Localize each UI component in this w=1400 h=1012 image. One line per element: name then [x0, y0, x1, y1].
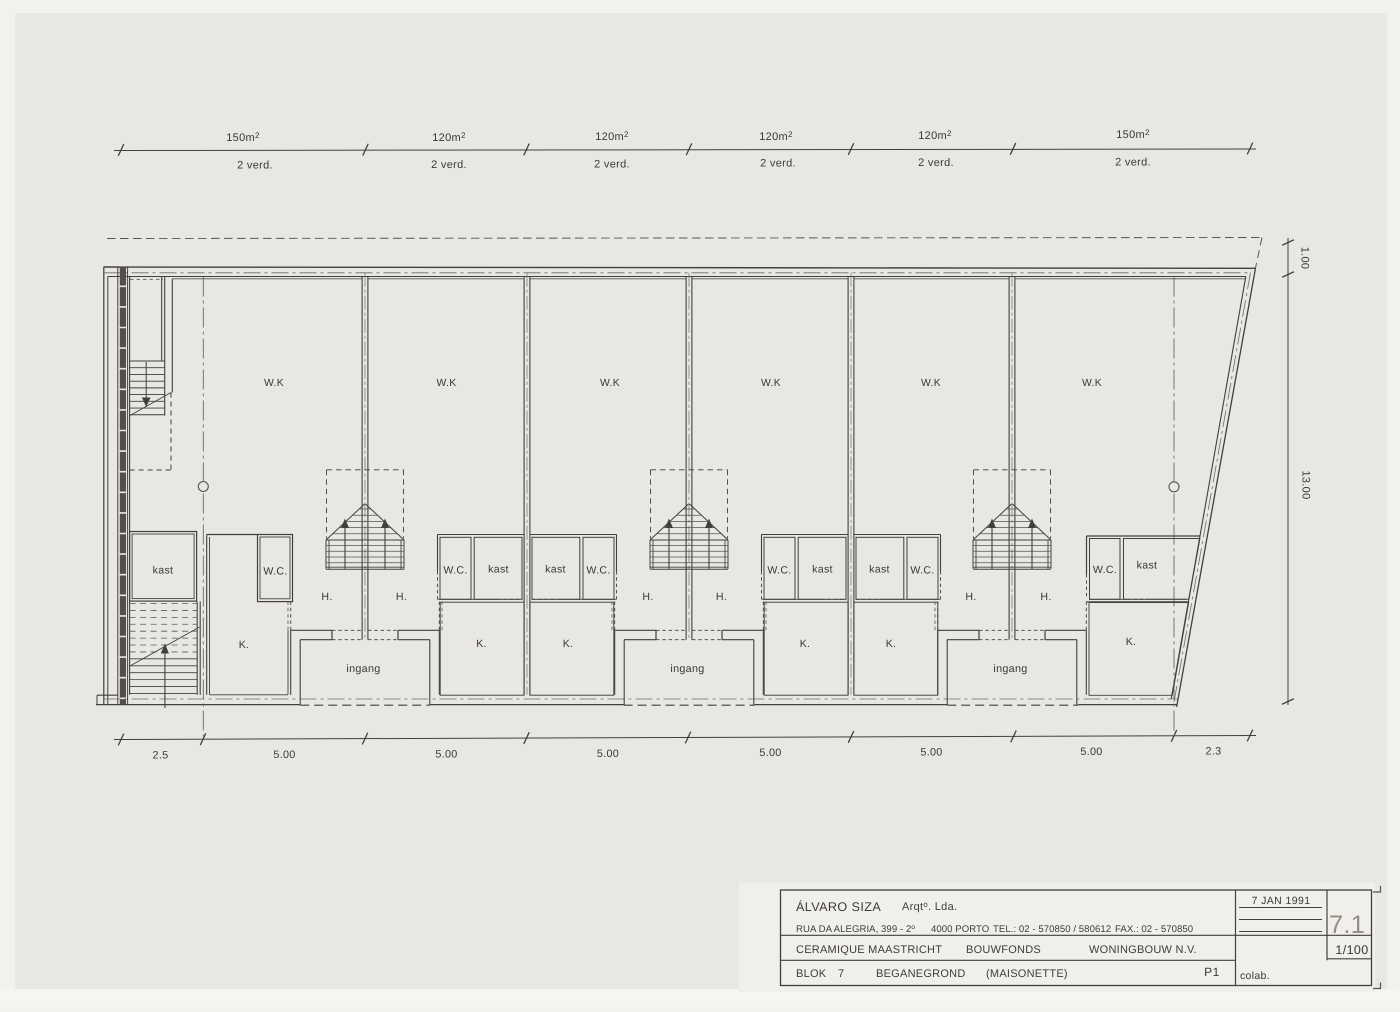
svg-text:150m2: 150m2 [1116, 128, 1150, 141]
svg-text:K.: K. [563, 638, 574, 650]
svg-text:W.K: W.K [600, 378, 620, 389]
svg-text:H.: H. [321, 591, 332, 603]
svg-text:13.00: 13.00 [1300, 470, 1312, 499]
svg-text:kast: kast [1137, 560, 1158, 572]
svg-text:ÁLVARO SIZA: ÁLVARO SIZA [796, 900, 881, 914]
svg-text:H.: H. [1040, 591, 1051, 603]
svg-text:K.: K. [800, 638, 811, 650]
svg-text:2.5: 2.5 [153, 749, 169, 761]
svg-text:W.K: W.K [761, 378, 781, 389]
svg-text:W.K: W.K [437, 378, 457, 389]
svg-text:W.C.: W.C. [910, 565, 934, 577]
svg-text:120m2: 120m2 [595, 130, 629, 143]
svg-text:kast: kast [869, 564, 890, 576]
svg-text:ingang: ingang [993, 663, 1027, 675]
svg-text:7.1: 7.1 [1329, 911, 1365, 939]
svg-text:kast: kast [153, 565, 174, 577]
svg-text:5.00: 5.00 [435, 748, 457, 760]
svg-text:W.C.: W.C. [443, 565, 467, 577]
svg-text:2 verd.: 2 verd. [760, 158, 796, 170]
svg-text:W.C.: W.C. [767, 565, 791, 577]
svg-text:5.00: 5.00 [1080, 746, 1102, 758]
svg-text:W.C.: W.C. [1093, 564, 1117, 576]
svg-text:W.K: W.K [264, 378, 284, 389]
svg-text:2 verd.: 2 verd. [1115, 157, 1151, 169]
svg-text:kast: kast [488, 564, 509, 576]
svg-text:150m2: 150m2 [226, 131, 260, 144]
svg-text:H.: H. [396, 591, 407, 603]
svg-text:CERAMIQUE MAASTRICHTBOUWFONDSW: CERAMIQUE MAASTRICHTBOUWFONDSWONINGBOUW … [796, 944, 1197, 956]
svg-text:7 JAN 1991: 7 JAN 1991 [1252, 895, 1311, 907]
svg-text:2 verd.: 2 verd. [237, 160, 273, 172]
svg-text:P1: P1 [1204, 965, 1220, 979]
svg-text:K.: K. [476, 638, 487, 650]
svg-text:120m2: 120m2 [918, 129, 952, 142]
svg-text:K.: K. [886, 638, 897, 650]
svg-text:2 verd.: 2 verd. [431, 159, 467, 171]
svg-text:1.00: 1.00 [1299, 247, 1311, 270]
svg-text:K.: K. [1126, 636, 1137, 648]
svg-text:H.: H. [716, 591, 727, 603]
svg-text:ingang: ingang [346, 663, 380, 675]
svg-text:RUA DA ALEGRIA, 399 - 2o4000 P: RUA DA ALEGRIA, 399 - 2o4000 PORTOTEL.: … [796, 924, 1193, 935]
svg-text:5.00: 5.00 [597, 748, 619, 760]
svg-text:2.3: 2.3 [1206, 746, 1222, 758]
svg-text:kast: kast [812, 564, 833, 576]
svg-text:5.00: 5.00 [920, 747, 942, 759]
svg-text:W.C.: W.C. [586, 565, 610, 577]
svg-text:W.C.: W.C. [263, 566, 287, 578]
svg-text:W.K: W.K [1082, 378, 1102, 389]
svg-text:colab.: colab. [1240, 970, 1270, 982]
svg-text:120m2: 120m2 [759, 130, 793, 143]
svg-text:ingang: ingang [670, 663, 704, 675]
svg-text:H.: H. [642, 591, 653, 603]
svg-text:W.K: W.K [921, 378, 941, 389]
svg-text:K.: K. [239, 639, 250, 651]
svg-text:2 verd.: 2 verd. [918, 157, 954, 169]
svg-text:H.: H. [965, 591, 976, 603]
svg-text:5.00: 5.00 [759, 747, 781, 759]
svg-text:5.00: 5.00 [273, 749, 295, 761]
svg-text:2 verd.: 2 verd. [594, 158, 630, 170]
svg-text:120m2: 120m2 [432, 131, 466, 144]
svg-text:kast: kast [545, 564, 566, 576]
svg-text:1/100: 1/100 [1335, 943, 1368, 957]
svg-text:Arqto. Lda.: Arqto. Lda. [902, 900, 957, 913]
